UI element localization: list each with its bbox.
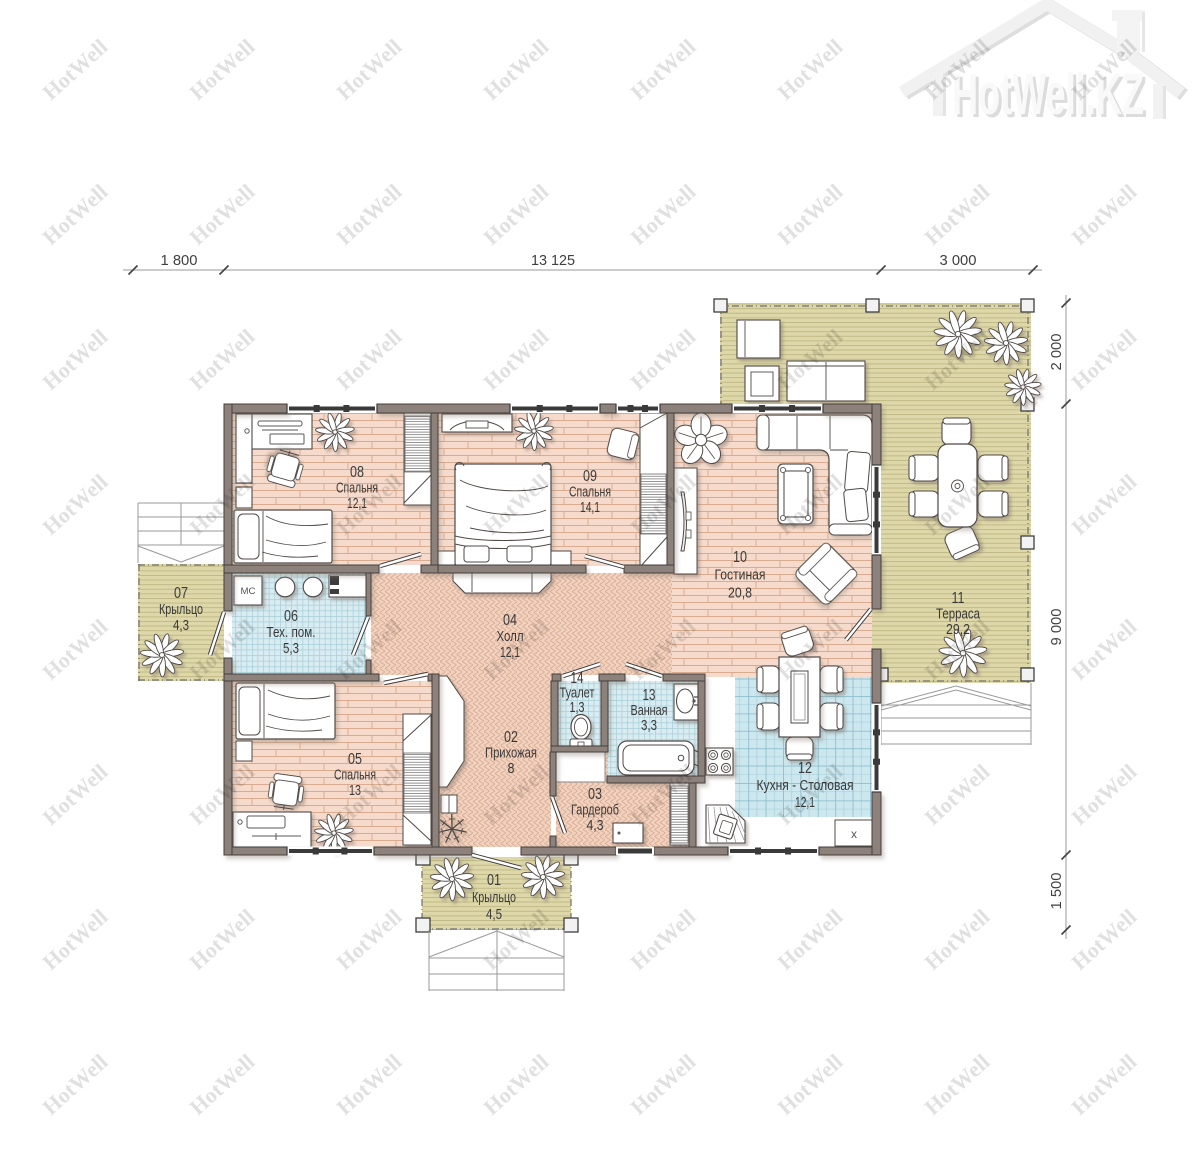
svg-text:02: 02 <box>504 729 518 746</box>
svg-text:2 000: 2 000 <box>1048 334 1065 371</box>
svg-text:20,8: 20,8 <box>728 584 752 601</box>
svg-text:14,1: 14,1 <box>580 499 600 516</box>
svg-text:3,3: 3,3 <box>641 717 657 734</box>
svg-text:09: 09 <box>583 468 597 485</box>
svg-text:1 800: 1 800 <box>161 252 198 269</box>
svg-text:4,5: 4,5 <box>486 906 502 923</box>
svg-text:Тех. пом.: Тех. пом. <box>267 624 316 641</box>
svg-text:11: 11 <box>952 590 965 607</box>
svg-text:Прихожая: Прихожая <box>485 745 537 762</box>
svg-text:1 500: 1 500 <box>1048 873 1065 910</box>
svg-text:10: 10 <box>733 549 747 566</box>
svg-text:x: x <box>851 827 857 841</box>
svg-text:05: 05 <box>348 751 362 768</box>
svg-text:Спальня: Спальня <box>569 484 611 501</box>
svg-text:9 000: 9 000 <box>1048 609 1065 646</box>
svg-text:МС: МС <box>241 586 256 597</box>
svg-text:08: 08 <box>350 464 364 481</box>
svg-text:Крыльцо: Крыльцо <box>472 889 516 906</box>
svg-text:12: 12 <box>798 760 812 777</box>
svg-text:Гардероб: Гардероб <box>571 802 619 819</box>
svg-text:4,3: 4,3 <box>587 817 604 834</box>
svg-text:03: 03 <box>588 786 602 803</box>
svg-text:Гостиная: Гостиная <box>715 567 766 584</box>
svg-text:04: 04 <box>503 612 517 629</box>
svg-text:3 000: 3 000 <box>940 252 977 269</box>
svg-text:01: 01 <box>487 872 501 889</box>
svg-text:06: 06 <box>284 608 298 625</box>
svg-text:13 125: 13 125 <box>531 252 575 269</box>
svg-text:8: 8 <box>508 760 515 777</box>
svg-text:07: 07 <box>174 585 188 602</box>
svg-text:Крыльцо: Крыльцо <box>159 601 203 618</box>
svg-text:4,3: 4,3 <box>173 617 189 634</box>
svg-text:1,3: 1,3 <box>570 699 585 716</box>
svg-text:5,3: 5,3 <box>283 640 299 657</box>
